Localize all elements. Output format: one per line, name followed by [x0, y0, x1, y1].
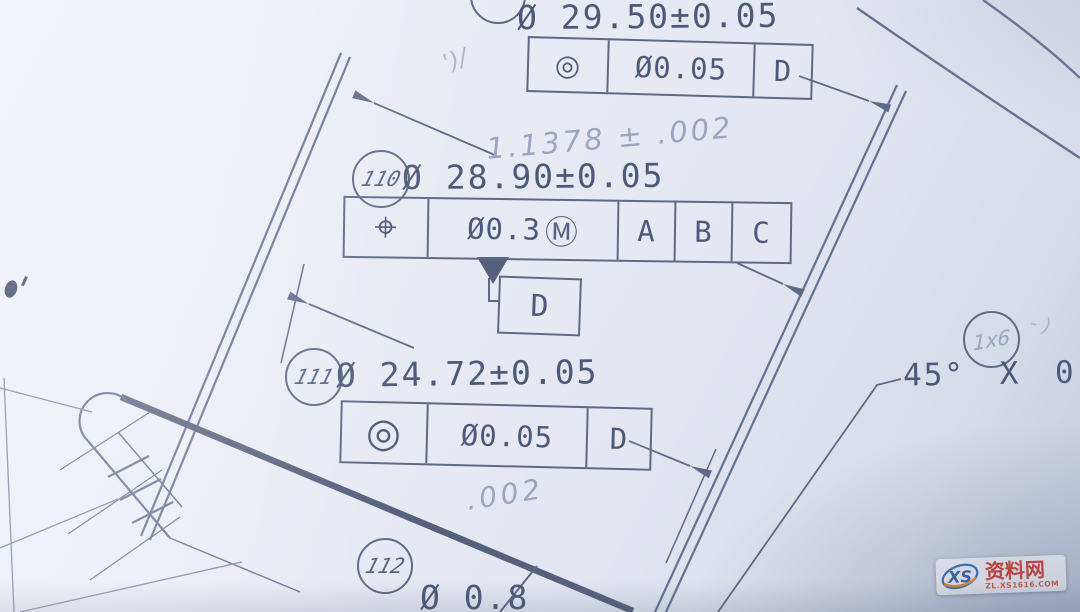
fcf-29-50-tolerance: Ø0.05 — [606, 40, 753, 96]
part-edge-right-cylinder — [655, 85, 906, 612]
fcf-28-90-datum-b: B — [674, 202, 732, 261]
fcf-28-90-datum-a: A — [617, 202, 675, 261]
drawing-photo: Ø 29.50±0.05 ◎ Ø0.05 D ')/ 1.1378 ± .002… — [0, 0, 1080, 612]
concentricity-symbol-icon: ◎ — [528, 38, 607, 92]
watermark-site-name: 资料网 — [985, 558, 1059, 581]
part-edge-outer-arcs — [857, 0, 1080, 158]
fcf-29-50: ◎ Ø0.05 D — [526, 36, 813, 100]
chamfer-text: 45° X 0. — [903, 354, 1080, 393]
balloon-111: 111 — [285, 348, 343, 406]
fcf-28-90-datum-c: C — [731, 203, 791, 262]
balloon-110-label: 110 — [359, 167, 404, 191]
fcf-28-90-tolerance: Ø0.3 Ⓜ — [427, 199, 618, 260]
balloon-112: 112 — [357, 538, 413, 594]
fcf-24-72-tolerance: Ø0.05 — [425, 404, 586, 467]
dimension-text-28-90: Ø 28.90±0.05 — [402, 156, 665, 197]
dimension-text-0-8: Ø 0.8 — [420, 578, 529, 612]
dimension-text-29-50: Ø 29.50±0.05 — [517, 0, 780, 37]
position-symbol-icon: ⌖ — [345, 198, 428, 257]
balloon-111-label: 111 — [292, 365, 337, 389]
watermark: XS 资料网 ZL.XS1616.COM — [935, 555, 1066, 596]
dimension-text-24-72: Ø 24.72±0.05 — [336, 352, 599, 395]
mmc-modifier-icon: Ⓜ — [545, 206, 580, 254]
watermark-text: 资料网 ZL.XS1616.COM — [985, 558, 1060, 590]
watermark-site-url: ZL.XS1616.COM — [985, 578, 1059, 590]
xs-logo-icon: XS — [940, 561, 981, 592]
fcf-24-72: ◎ Ø0.05 D — [339, 400, 652, 471]
xs-logo-text: XS — [947, 567, 973, 587]
ink-smudge — [3, 276, 28, 299]
balloon-112-label: 112 — [363, 554, 408, 578]
balloon-chamfer-handwritten: 1x6 — [973, 324, 1010, 355]
fcf-28-90-tolerance-value: Ø0.3 — [467, 212, 541, 247]
concentricity-symbol-icon: ◎ — [341, 402, 426, 463]
datum-d-label: D — [530, 288, 549, 324]
part-edge-left-cylinder — [141, 53, 350, 540]
fcf-28-90: ⌖ Ø0.3 Ⓜ A B C — [343, 196, 793, 264]
datum-d-box: D — [497, 276, 582, 337]
left-construction-lines — [0, 378, 242, 612]
fcf-29-50-datum: D — [752, 44, 811, 98]
fcf-24-72-datum: D — [585, 408, 650, 469]
